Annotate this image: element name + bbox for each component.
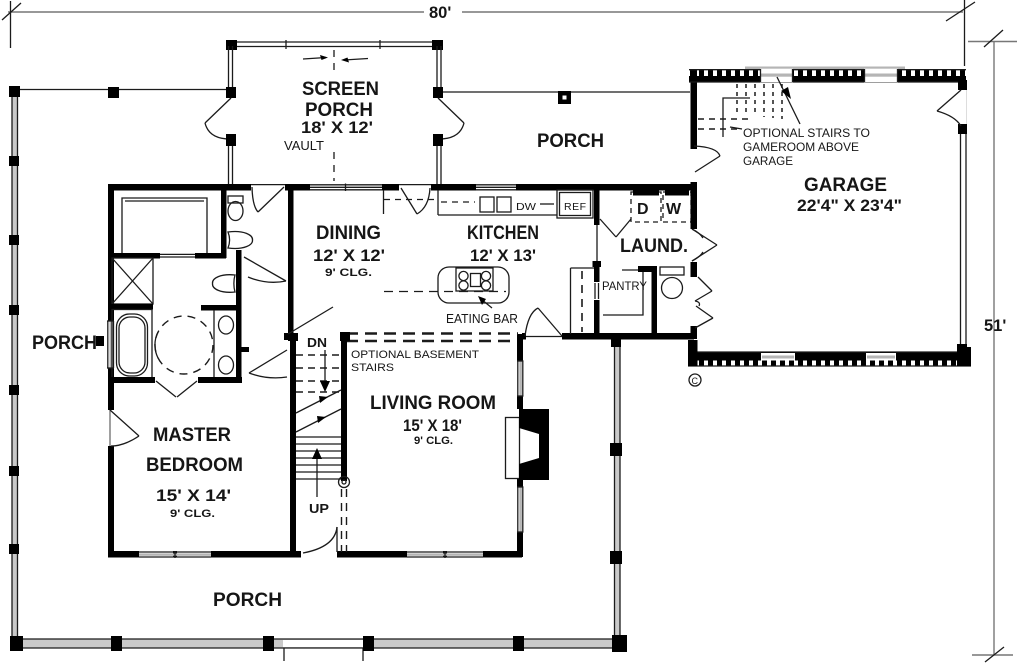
- svg-text:22'4" X 23'4": 22'4" X 23'4": [797, 197, 902, 215]
- svg-text:9' CLG.: 9' CLG.: [170, 508, 215, 520]
- svg-text:PORCH: PORCH: [32, 333, 97, 354]
- svg-text:12' X 12': 12' X 12': [313, 247, 385, 265]
- svg-text:GAMEROOM ABOVE: GAMEROOM ABOVE: [743, 142, 859, 154]
- svg-text:C: C: [692, 376, 699, 386]
- svg-text:GARAGE: GARAGE: [804, 175, 887, 196]
- svg-text:OPTIONAL BASEMENT: OPTIONAL BASEMENT: [351, 349, 479, 361]
- svg-text:D: D: [637, 201, 649, 218]
- svg-text:DN: DN: [307, 335, 327, 350]
- svg-text:STAIRS: STAIRS: [351, 362, 394, 374]
- svg-text:DINING: DINING: [316, 223, 381, 244]
- svg-text:PORCH: PORCH: [213, 590, 282, 611]
- svg-text:LIVING ROOM: LIVING ROOM: [370, 393, 496, 414]
- svg-text:15' X 14': 15' X 14': [156, 487, 231, 505]
- svg-text:KITCHEN: KITCHEN: [467, 223, 539, 244]
- svg-text:18' X 12': 18' X 12': [301, 119, 373, 137]
- svg-text:EATING BAR: EATING BAR: [446, 311, 518, 326]
- svg-text:PORCH: PORCH: [537, 131, 604, 152]
- svg-text:W: W: [666, 201, 682, 218]
- svg-text:PORCH: PORCH: [305, 100, 373, 121]
- svg-text:OPTIONAL STAIRS TO: OPTIONAL STAIRS TO: [743, 128, 870, 140]
- svg-text:VAULT: VAULT: [284, 139, 324, 153]
- svg-text:PANTRY: PANTRY: [602, 281, 647, 293]
- svg-text:REF: REF: [564, 201, 586, 213]
- svg-text:9' CLG.: 9' CLG.: [325, 267, 372, 279]
- svg-text:UP: UP: [309, 501, 329, 516]
- svg-text:DW: DW: [516, 201, 536, 213]
- svg-text:80': 80': [429, 4, 451, 22]
- svg-text:LAUND.: LAUND.: [620, 236, 688, 257]
- svg-text:12' X 13': 12' X 13': [470, 247, 536, 265]
- svg-text:SCREEN: SCREEN: [302, 79, 379, 100]
- svg-text:MASTER: MASTER: [153, 425, 231, 446]
- svg-text:15' X 18': 15' X 18': [403, 417, 462, 435]
- svg-text:BEDROOM: BEDROOM: [146, 455, 243, 476]
- svg-text:51': 51': [984, 317, 1006, 335]
- svg-text:GARAGE: GARAGE: [743, 156, 793, 168]
- svg-text:9' CLG.: 9' CLG.: [414, 435, 453, 447]
